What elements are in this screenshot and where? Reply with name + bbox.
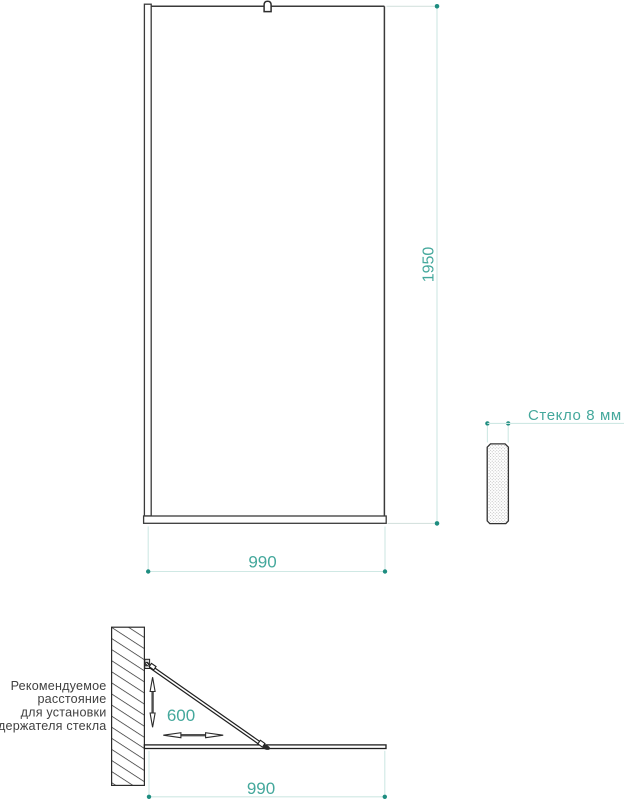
svg-text:Стекло 8 мм: Стекло 8 мм: [528, 407, 622, 424]
svg-text:держателя стекла: держателя стекла: [0, 719, 107, 733]
svg-text:990: 990: [248, 553, 276, 572]
svg-text:990: 990: [247, 779, 275, 798]
svg-text:1950: 1950: [421, 247, 438, 283]
svg-text:расстояние: расстояние: [37, 692, 106, 706]
svg-text:Рекомендуемое: Рекомендуемое: [11, 679, 107, 693]
svg-text:600: 600: [167, 706, 195, 725]
svg-text:для установки: для установки: [21, 706, 107, 720]
